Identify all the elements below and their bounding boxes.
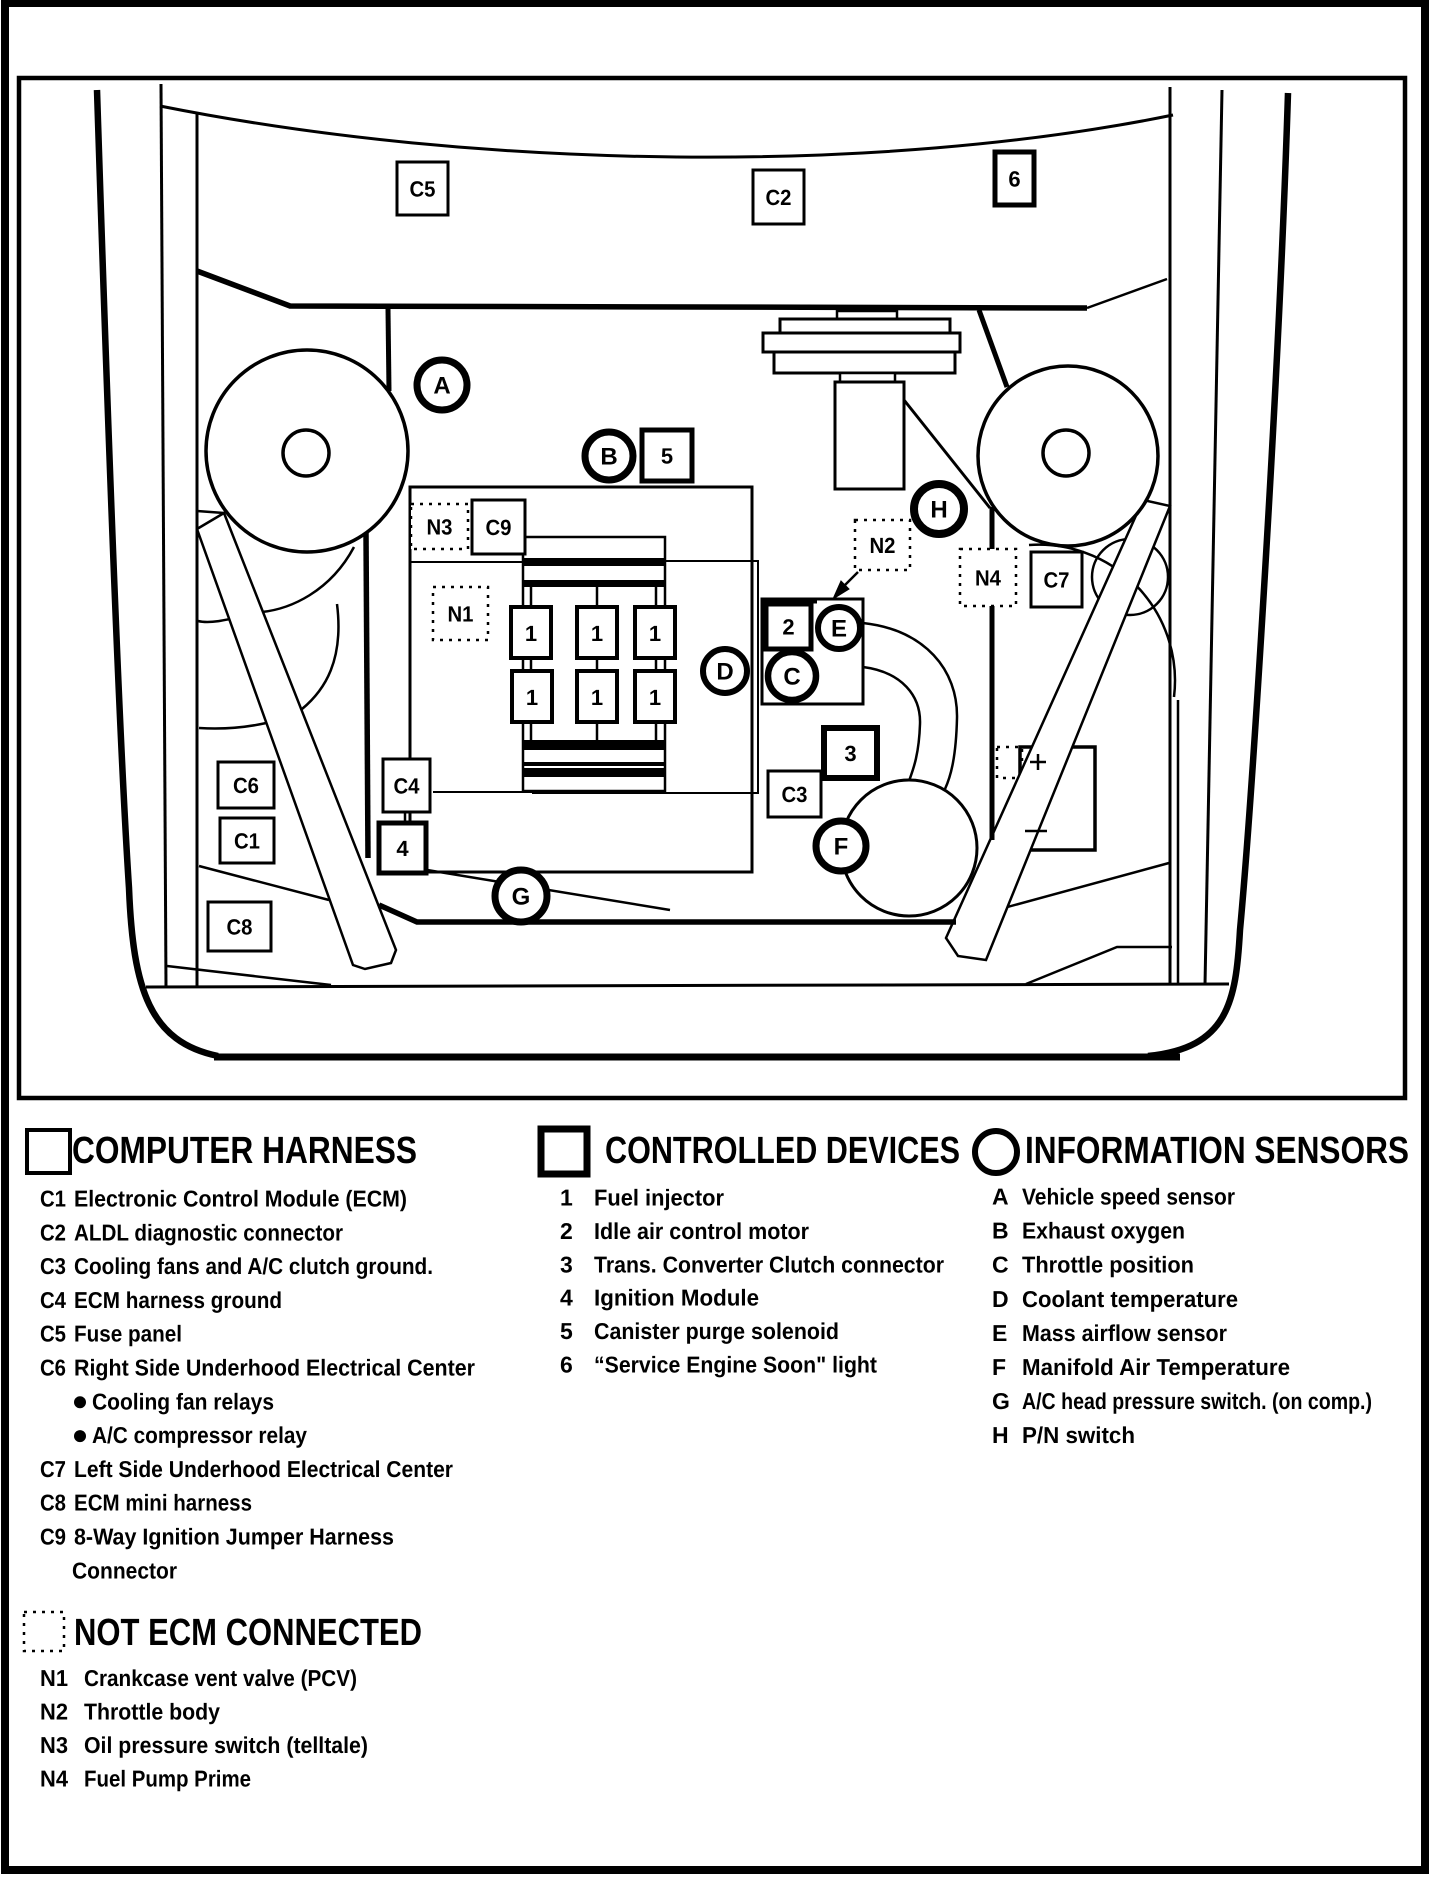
svg-text:H: H (930, 497, 947, 524)
svg-text:D: D (992, 1286, 1009, 1312)
svg-text:5: 5 (560, 1318, 573, 1344)
svg-text:5: 5 (661, 443, 673, 468)
svg-text:C: C (992, 1252, 1009, 1278)
svg-text:“Service Engine Soon" light: “Service Engine Soon" light (594, 1352, 877, 1378)
svg-text:Oil pressure switch (telltale): Oil pressure switch (telltale) (84, 1732, 368, 1758)
svg-text:C4: C4 (394, 773, 421, 798)
svg-text:Mass airflow sensor: Mass airflow sensor (1022, 1320, 1227, 1346)
svg-text:Cooling fans and A/C clutch gr: Cooling fans and A/C clutch ground. (74, 1253, 433, 1279)
svg-text:ECM mini harness: ECM mini harness (74, 1490, 252, 1516)
svg-text:C3: C3 (782, 782, 808, 807)
svg-text:Canister purge solenoid: Canister purge solenoid (594, 1318, 839, 1344)
svg-text:4: 4 (396, 836, 409, 861)
svg-text:G: G (512, 884, 531, 911)
svg-text:C3: C3 (40, 1253, 66, 1279)
svg-text:1: 1 (591, 685, 603, 710)
svg-text:N4: N4 (40, 1766, 68, 1792)
svg-text:B: B (600, 444, 617, 471)
svg-text:Connector: Connector (72, 1557, 177, 1583)
svg-text:C2: C2 (766, 185, 792, 210)
svg-text:1: 1 (591, 621, 603, 646)
svg-text:N3: N3 (427, 514, 453, 539)
svg-text:H: H (992, 1422, 1009, 1448)
svg-text:N2: N2 (40, 1699, 68, 1725)
svg-text:Ignition Module: Ignition Module (594, 1285, 759, 1311)
svg-text:C5: C5 (410, 176, 436, 201)
svg-text:B: B (992, 1218, 1009, 1244)
svg-text:ALDL diagnostic connector: ALDL diagnostic connector (74, 1219, 343, 1245)
svg-text:Crankcase vent valve (PCV): Crankcase vent valve (PCV) (84, 1665, 357, 1691)
svg-text:2: 2 (560, 1218, 573, 1244)
svg-text:C7: C7 (40, 1456, 66, 1482)
svg-text:C2: C2 (40, 1219, 66, 1245)
svg-text:C1: C1 (234, 828, 260, 853)
svg-text:Idle air control motor: Idle air control motor (594, 1218, 809, 1244)
svg-text:Cooling fan relays: Cooling fan relays (92, 1388, 274, 1414)
svg-text:1: 1 (649, 621, 661, 646)
svg-text:6: 6 (560, 1352, 573, 1378)
svg-text:Manifold Air Temperature: Manifold Air Temperature (1022, 1354, 1290, 1380)
svg-text:C8: C8 (40, 1490, 66, 1516)
svg-text:A: A (992, 1184, 1009, 1210)
svg-text:A: A (433, 373, 450, 400)
svg-text:Fuel Pump Prime: Fuel Pump Prime (84, 1766, 251, 1792)
svg-text:F: F (992, 1354, 1006, 1380)
svg-text:N4: N4 (975, 565, 1002, 590)
svg-text:E: E (992, 1320, 1007, 1346)
svg-text:1: 1 (526, 685, 538, 710)
svg-text:C7: C7 (1044, 567, 1070, 592)
svg-text:N3: N3 (40, 1732, 68, 1758)
svg-text:8-Way Ignition Jumper Harness: 8-Way Ignition Jumper Harness (74, 1524, 394, 1550)
svg-text:Electronic Control Module (ECM: Electronic Control Module (ECM) (74, 1186, 407, 1212)
svg-text:C9: C9 (40, 1524, 66, 1550)
svg-text:4: 4 (560, 1285, 573, 1311)
svg-text:C: C (783, 664, 800, 691)
svg-text:CONTROLLED DEVICES: CONTROLLED DEVICES (605, 1130, 960, 1172)
svg-text:Fuel injector: Fuel injector (594, 1185, 724, 1211)
svg-text:1: 1 (560, 1185, 573, 1211)
svg-text:N1: N1 (448, 601, 474, 626)
svg-text:1: 1 (649, 685, 661, 710)
svg-text:Right Side Underhood Electrica: Right Side Underhood Electrical Center (74, 1355, 475, 1381)
svg-text:2: 2 (782, 614, 794, 639)
svg-text:Coolant temperature: Coolant temperature (1022, 1286, 1238, 1312)
svg-text:Left Side Underhood Electrical: Left Side Underhood Electrical Center (74, 1456, 453, 1482)
svg-text:Trans. Converter Clutch connec: Trans. Converter Clutch connector (594, 1251, 944, 1277)
svg-text:COMPUTER HARNESS: COMPUTER HARNESS (72, 1130, 417, 1172)
svg-text:1: 1 (525, 621, 537, 646)
svg-text:Vehicle speed sensor: Vehicle speed sensor (1022, 1184, 1235, 1210)
svg-text:NOT ECM CONNECTED: NOT ECM CONNECTED (74, 1612, 422, 1654)
svg-text:ECM harness ground: ECM harness ground (74, 1287, 282, 1313)
svg-text:A/C compressor relay: A/C compressor relay (92, 1422, 307, 1448)
svg-text:C5: C5 (40, 1321, 66, 1347)
svg-text:F: F (834, 834, 849, 861)
svg-text:Exhaust oxygen: Exhaust oxygen (1022, 1218, 1185, 1244)
svg-text:D: D (716, 659, 733, 686)
svg-text:Throttle body: Throttle body (84, 1699, 220, 1725)
svg-text:E: E (831, 616, 847, 643)
svg-text:6: 6 (1008, 166, 1020, 191)
svg-text:N1: N1 (40, 1665, 68, 1691)
svg-text:3: 3 (844, 741, 856, 766)
svg-text:G: G (992, 1388, 1010, 1414)
svg-text:C4: C4 (40, 1287, 66, 1313)
svg-text:Throttle position: Throttle position (1022, 1252, 1194, 1278)
svg-text:C6: C6 (40, 1355, 66, 1381)
svg-text:Fuse panel: Fuse panel (74, 1321, 182, 1347)
svg-text:P/N switch: P/N switch (1022, 1422, 1135, 1448)
svg-text:C8: C8 (227, 914, 253, 939)
svg-text:C1: C1 (40, 1186, 66, 1212)
svg-text:N2: N2 (870, 533, 896, 558)
svg-text:C9: C9 (486, 515, 512, 540)
svg-text:3: 3 (560, 1251, 573, 1277)
svg-text:A/C head pressure switch. (on: A/C head pressure switch. (on comp.) (1022, 1388, 1372, 1414)
svg-text:INFORMATION SENSORS: INFORMATION SENSORS (1025, 1130, 1409, 1172)
svg-text:C6: C6 (233, 773, 259, 798)
